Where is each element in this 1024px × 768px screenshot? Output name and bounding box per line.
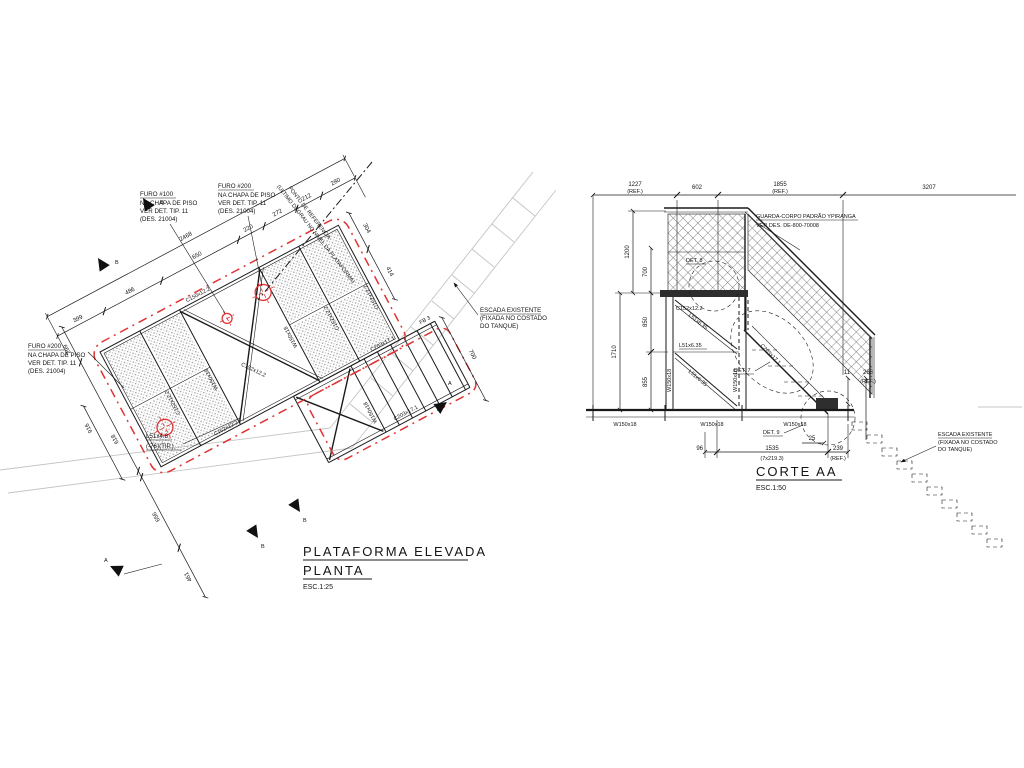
svg-text:VER DET. TIP. 11: VER DET. TIP. 11 xyxy=(28,360,77,367)
svg-text:(DES. 21004): (DES. 21004) xyxy=(140,216,178,223)
svg-text:VER DET. TIP. 11: VER DET. TIP. 11 xyxy=(218,200,267,207)
section-left-dims: 1200 700 1710 850 855 xyxy=(612,211,668,410)
dim-total: 2468 xyxy=(179,231,194,243)
guardrail-mesh-panel xyxy=(668,214,745,293)
cut-letter-a2: A xyxy=(104,558,108,564)
dim-602: 602 xyxy=(692,185,703,191)
sec-l51-brace1: L51x6.35 xyxy=(687,313,709,332)
section-scale: ESC.1:50 xyxy=(756,485,786,492)
dim-1200: 1200 xyxy=(625,245,631,259)
svg-text:ESCADA EXISTENTE: ESCADA EXISTENTE xyxy=(480,307,541,314)
plan-view: 2468 399 486 650 220 272 212 280 304 414… xyxy=(0,141,556,610)
dim-11: 11 xyxy=(844,370,851,376)
svg-text:FURO #200: FURO #200 xyxy=(28,343,62,350)
sec-w150-base3: W150x18 xyxy=(783,422,806,428)
dim-1710: 1710 xyxy=(612,345,618,359)
det-8-label: DET. 8 xyxy=(686,258,703,264)
cut-letter-b4: B xyxy=(261,544,265,550)
dim-855: 855 xyxy=(643,376,649,387)
svg-text:NA CHAPA DE PISO: NA CHAPA DE PISO xyxy=(28,352,85,359)
plan-title: PLATAFORMA ELEVADA xyxy=(303,544,487,559)
svg-text:(FIXADA NO COSTADO: (FIXADA NO COSTADO xyxy=(480,315,547,322)
stair-guardrail-mesh xyxy=(748,214,872,394)
sec-w150-base1: W150x18 xyxy=(613,422,636,428)
dim-239-ref: (REF.) xyxy=(830,456,846,462)
plan-dimension-lines xyxy=(37,150,506,606)
dim-850: 850 xyxy=(643,316,649,327)
dim-1535-sub: (7x219.3) xyxy=(760,456,783,462)
dim-1535: 1535 xyxy=(765,446,779,452)
svg-text:DO TANQUE): DO TANQUE) xyxy=(938,447,972,453)
svg-text:GUARDA-CORPO PADRÃO YPIRANGA: GUARDA-CORPO PADRÃO YPIRANGA xyxy=(756,213,856,220)
note-furo-200-left: FURO #200 NA CHAPA DE PISO VER DET. TIP.… xyxy=(28,343,124,388)
dim-1855-ref: (REF.) xyxy=(772,189,788,195)
furo-100 xyxy=(216,308,238,330)
existing-ladder-plan xyxy=(0,172,556,493)
section-title-block: CORTE AA ESC.1:50 xyxy=(756,464,842,492)
platform-floor xyxy=(660,290,748,297)
cut-letter-a1: A xyxy=(448,381,452,387)
drawing-sheet: 2468 399 486 650 220 272 212 280 304 414… xyxy=(0,0,1024,768)
det-7-label: DET. 7 xyxy=(734,368,751,374)
dim-25: 25 xyxy=(809,436,816,442)
stair-base xyxy=(816,398,838,410)
dim-268: 268 xyxy=(863,370,874,376)
sec-w150-base2: W150x18 xyxy=(700,422,723,428)
dim-1227: 1227 xyxy=(628,182,642,188)
plan-scale: ESC.1:25 xyxy=(303,584,333,591)
note-furo-100: FURO #100 NA CHAPA DE PISO VER DET. TIP.… xyxy=(140,191,225,313)
member-c152-diag: C152x12.2 xyxy=(240,362,267,379)
svg-text:FURO #200: FURO #200 xyxy=(218,183,252,190)
plan-rotated-geometry: 2468 399 486 650 220 272 212 280 304 414… xyxy=(28,141,517,610)
det-9-label: DET. 9 xyxy=(763,430,780,436)
svg-text:(DES. 21004): (DES. 21004) xyxy=(218,208,256,215)
dim-96: 96 xyxy=(696,446,703,452)
section-structure xyxy=(586,208,1022,421)
plan-subtitle: PLANTA xyxy=(303,563,365,578)
dim-414: 414 xyxy=(384,266,394,278)
note-escada-plan: ESCADA EXISTENTE (FIXADA NO COSTADO DO T… xyxy=(454,283,547,330)
svg-text:(DES. 21004): (DES. 21004) xyxy=(28,368,66,375)
dim-1227-ref: (REF.) xyxy=(627,189,643,195)
cut-letter-b2: B xyxy=(115,260,119,266)
dim-3207: 3207 xyxy=(922,185,936,191)
svg-text:ESCADA EXISTENTE: ESCADA EXISTENTE xyxy=(938,432,993,438)
dim-239: 239 xyxy=(833,446,844,452)
svg-text:L51x4.8: L51x4.8 xyxy=(146,433,169,440)
dim-304: 304 xyxy=(361,223,371,235)
svg-text:(FIXADA NO COSTADO: (FIXADA NO COSTADO xyxy=(938,440,998,446)
svg-text:NA CHAPA DE PISO: NA CHAPA DE PISO xyxy=(218,192,275,199)
sec-c152: C152x12.2 xyxy=(676,306,703,312)
svg-text:(-76)(TIP.): (-76)(TIP.) xyxy=(146,443,174,450)
plan-title-block: PLATAFORMA ELEVADA PLANTA ESC.1:25 xyxy=(303,544,487,591)
svg-text:DO TANQUE): DO TANQUE) xyxy=(480,323,518,330)
dim-268-ref: (REF.) xyxy=(860,379,876,385)
cut-letter-b1: B xyxy=(160,200,164,206)
member-c203-stair-bottom: C203x17.1 xyxy=(393,405,419,423)
cad-drawing: 2468 399 486 650 220 272 212 280 304 414… xyxy=(0,0,1024,768)
dim-700: 700 xyxy=(467,349,477,361)
dim-700-sec: 700 xyxy=(643,266,649,277)
section-title: CORTE AA xyxy=(756,464,838,479)
dim-1855: 1855 xyxy=(773,182,787,188)
sec-l51-note: L51x6.35 xyxy=(679,343,707,349)
section-view: 1227 (REF.) 602 1855 (REF.) 3207 1200 70… xyxy=(586,182,1022,547)
sec-c203: C203x17.1 xyxy=(759,343,782,366)
svg-text:FURO #100: FURO #100 xyxy=(140,191,174,198)
svg-text:L51x6.35: L51x6.35 xyxy=(679,343,702,349)
section-bottom-dims: 96 1535 (7x219.3) 239 (REF.) 25 11 268 (… xyxy=(696,370,876,462)
cut-letter-b3: B xyxy=(303,518,307,524)
note-escada-section: ESCADA EXISTENTE (FIXADA NO COSTADO DO T… xyxy=(901,432,998,462)
sec-w150-col1: W150x18 xyxy=(667,369,673,392)
